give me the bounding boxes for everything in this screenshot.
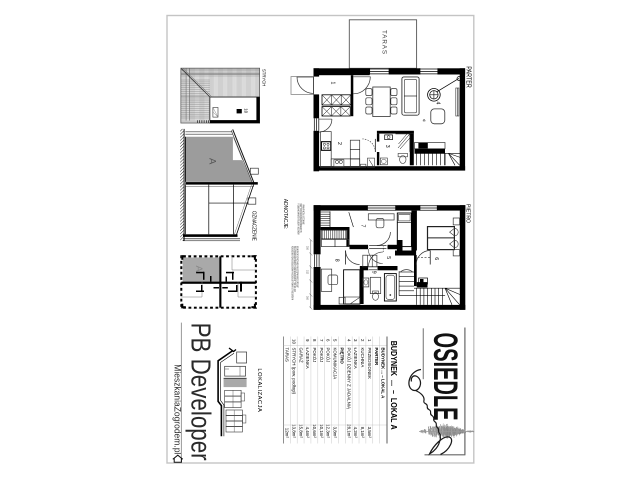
svg-text:BUDYNEK ... – LOKAL A: BUDYNEK ... – LOKAL A — [389, 341, 398, 430]
svg-text:A: A — [207, 158, 218, 165]
svg-text:MieszkaniaZogrodem.pl: MieszkaniaZogrodem.pl — [172, 364, 182, 454]
svg-text:GARAŻ: GARAŻ — [298, 348, 303, 363]
svg-text:7: 7 — [359, 225, 365, 228]
svg-text:4,2m²: 4,2m² — [353, 427, 358, 439]
svg-text:KOMUNIKACJA: KOMUNIKACJA — [333, 348, 338, 380]
svg-text:1: 1 — [330, 82, 336, 85]
svg-text:POKÓJ: POKÓJ — [319, 348, 324, 363]
svg-text:3: 3 — [384, 145, 390, 148]
svg-text:10: 10 — [291, 339, 296, 344]
svg-text:PRZEDSIONEK: PRZEDSIONEK — [367, 348, 372, 380]
svg-text:12m²: 12m² — [285, 428, 290, 439]
svg-text:BUDYNEK ... – LOKAL A: BUDYNEK ... – LOKAL A — [381, 348, 386, 400]
svg-text:A: A — [193, 266, 204, 273]
svg-text:4,4m²: 4,4m² — [305, 427, 310, 439]
svg-text:STRYCH: STRYCH — [260, 69, 266, 87]
svg-text:4: 4 — [434, 102, 440, 105]
svg-text:WYMIARY MOGĄ ULEC ZMIANIE: WYMIARY MOGĄ ULEC ZMIANIE — [301, 205, 305, 225]
svg-text:PARTER: PARTER — [374, 348, 379, 367]
svg-text:ADNOTACJE:: ADNOTACJE: — [282, 199, 288, 230]
svg-text:LOKALIZACJA: LOKALIZACJA — [256, 368, 262, 412]
svg-text:STRYCH (pow. podłogi): STRYCH (pow. podłogi) — [291, 348, 296, 395]
svg-text:8,1m²: 8,1m² — [360, 427, 365, 439]
svg-text:POKÓJ: POKÓJ — [326, 348, 331, 363]
svg-text:3,8m²: 3,8m² — [333, 427, 338, 439]
svg-text:12,3m²: 12,3m² — [326, 424, 331, 438]
svg-text:28,1m²: 28,1m² — [346, 424, 351, 438]
svg-text:TARAS: TARAS — [285, 348, 290, 362]
svg-text:OSIEDLE: OSIEDLE — [426, 333, 464, 421]
svg-text:ŁAZIENKA: ŁAZIENKA — [305, 348, 310, 369]
svg-text:POKÓJ: POKÓJ — [312, 348, 317, 363]
svg-text:2: 2 — [336, 142, 342, 145]
svg-text:10: 10 — [244, 108, 249, 113]
svg-text:TARAS: TARAS — [380, 30, 387, 55]
svg-text:8: 8 — [333, 259, 339, 262]
svg-text:250: 250 — [306, 246, 309, 251]
svg-text:OZNACZENIE: OZNACZENIE — [251, 211, 257, 241]
svg-text:15,8m²: 15,8m² — [298, 424, 303, 438]
svg-text:PIĘTRO: PIĘTRO — [339, 348, 344, 365]
svg-text:PIETRO: PIETRO — [464, 204, 470, 223]
svg-text:10,6m²: 10,6m² — [312, 424, 317, 438]
svg-text:13,8m²: 13,8m² — [291, 424, 296, 438]
svg-text:PB Developer: PB Developer — [185, 323, 216, 461]
svg-text:PARTER: PARTER — [465, 66, 472, 88]
svg-text:312: 312 — [306, 270, 309, 275]
svg-text:9: 9 — [371, 271, 377, 274]
svg-text:260: 260 — [306, 296, 309, 301]
svg-text:KUCHNIA: KUCHNIA — [360, 348, 365, 368]
svg-text:10,1m²: 10,1m² — [319, 424, 324, 438]
svg-text:3,5m²: 3,5m² — [367, 427, 372, 439]
svg-text:POKÓJ DZIENNY Z JADALNIĄ: POKÓJ DZIENNY Z JADALNIĄ — [346, 348, 351, 409]
svg-text:ŁAZIENKA: ŁAZIENKA — [353, 348, 358, 369]
svg-text:5: 5 — [385, 256, 391, 259]
svg-text:6: 6 — [433, 257, 439, 260]
